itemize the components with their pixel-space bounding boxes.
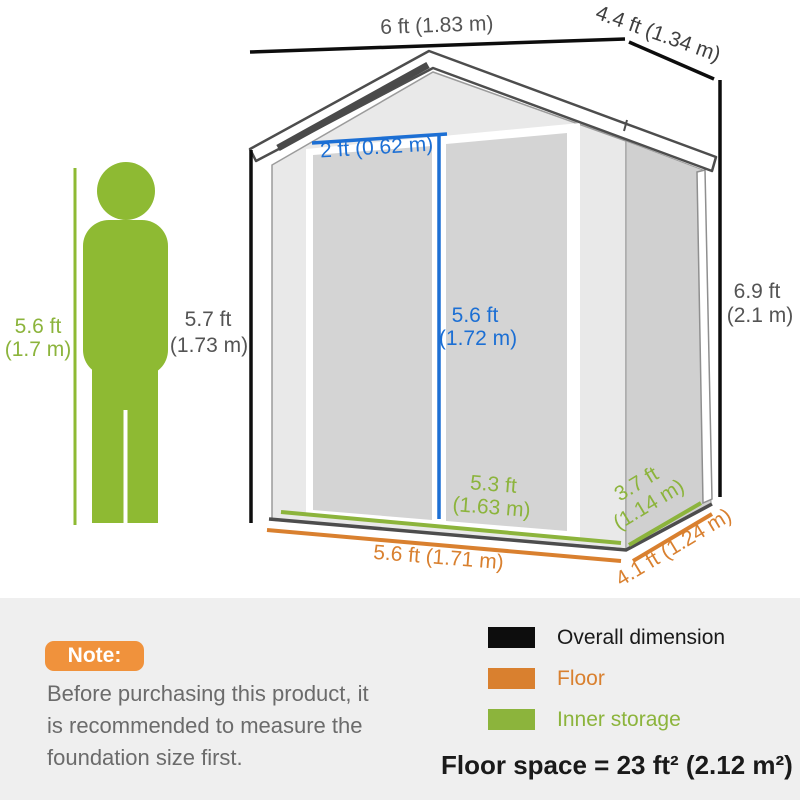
overall-width-label: 6 ft (1.83 m) [380,12,494,39]
dimension-diagram: 6 ft (1.83 m) 4.4 ft (1.34 m) 2 ft (0.62… [0,0,800,600]
inner-storage-swatch [488,709,535,730]
note-line: foundation size first. [47,742,407,774]
overall-height-label-ft: 6.9 ft [734,280,781,303]
door-height-label-m: (1.72 m) [439,327,517,350]
overall-dimension-swatch [488,627,535,648]
note-text: Before purchasing this product, it is re… [47,678,407,774]
floor-width-label: 5.6 ft (1.71 m) [372,541,504,574]
legend-label: Inner storage [557,708,681,732]
note-line: Before purchasing this product, it [47,678,407,710]
note-line: is recommended to measure the [47,710,407,742]
note-badge: Note: [45,641,144,671]
human-head [97,162,155,220]
shed-dimension-diagram-page: 6 ft (1.83 m) 4.4 ft (1.34 m) 2 ft (0.62… [0,0,800,800]
door-height-label-ft: 5.6 ft [452,304,499,327]
floor-space-summary: Floor space = 23 ft² (2.12 m²) [441,750,793,781]
legend-item-floor: Floor [488,668,725,689]
human-height-label-ft: 5.6 ft [15,315,62,338]
front-height-label-ft: 5.7 ft [185,308,232,331]
legend-label: Overall dimension [557,626,725,650]
human-figure [75,162,168,525]
overall-depth-label: 4.4 ft (1.34 m) [593,1,724,66]
front-height-label-m: (1.73 m) [170,334,248,357]
legend: Overall dimension Floor Inner storage [488,627,725,750]
shed-door-panel-left [313,146,432,520]
legend-item-inner-storage: Inner storage [488,709,725,730]
human-height-label-m: (1.7 m) [5,338,72,361]
floor-swatch [488,668,535,689]
legend-item-overall-dimension: Overall dimension [488,627,725,648]
legend-label: Floor [557,667,605,691]
overall-height-label-m: (2.1 m) [727,304,794,327]
overall-width-dimension-line [250,39,625,52]
